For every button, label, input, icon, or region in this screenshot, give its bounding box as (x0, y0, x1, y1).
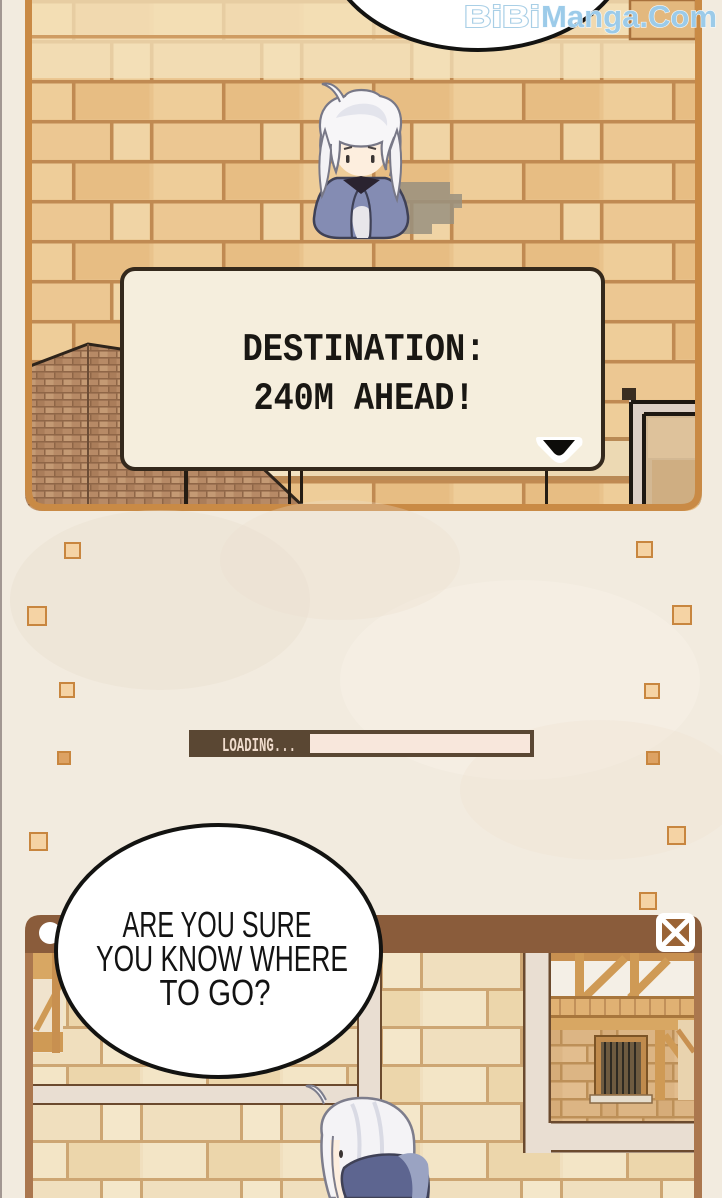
svg-text:TO GO?: TO GO? (160, 972, 271, 1013)
svg-text:DESTINATION:: DESTINATION: (243, 328, 486, 372)
svg-text:LOADING...: LOADING... (222, 735, 296, 757)
svg-text:Manga.Com: Manga.Com (541, 0, 717, 34)
svg-text:240M AHEAD!: 240M AHEAD! (254, 377, 475, 421)
svg-text:BiBi: BiBi (464, 0, 540, 34)
